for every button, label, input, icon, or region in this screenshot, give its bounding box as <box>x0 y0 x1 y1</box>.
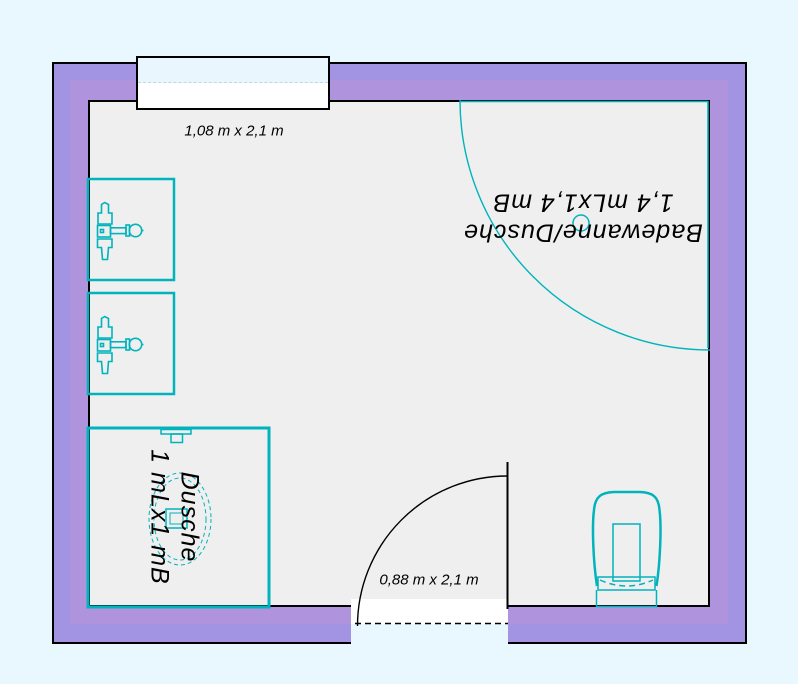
toilet-bowl <box>593 492 661 586</box>
shower-label-line2: 1 mLx1 mB <box>145 449 175 584</box>
door[interactable] <box>355 462 508 626</box>
shower-label-line1: Dusche <box>174 449 204 584</box>
door-swing-arc <box>358 476 508 626</box>
sink-bottom[interactable] <box>88 293 174 394</box>
sink-faucet-icon <box>98 317 144 374</box>
sink-top[interactable] <box>88 179 174 280</box>
sink-faucet-icon <box>98 203 144 260</box>
toilet-seat-band <box>598 577 655 590</box>
door-dimension-label: 0,88 m x 2,1 m <box>379 572 478 589</box>
toilet[interactable] <box>593 492 661 607</box>
toilet-base <box>597 590 657 607</box>
toilet-tank <box>613 524 640 581</box>
floorplan-canvas: 1,08 m x 2,1 m 0,88 m x 2,1 m Badewanne/… <box>0 0 798 684</box>
bathtub-label-line1: Badewanne/Dusche <box>463 217 703 247</box>
window-dimension-label: 1,08 m x 2,1 m <box>184 123 283 140</box>
bathtub-label-line2: 1,4 mLx1,4 mB <box>463 188 703 218</box>
shower-label: Dusche 1 mLx1 mB <box>145 449 204 584</box>
shower-head-icon <box>161 430 191 443</box>
bathtub-label: Badewanne/Dusche 1,4 mLx1,4 mB <box>463 188 703 247</box>
